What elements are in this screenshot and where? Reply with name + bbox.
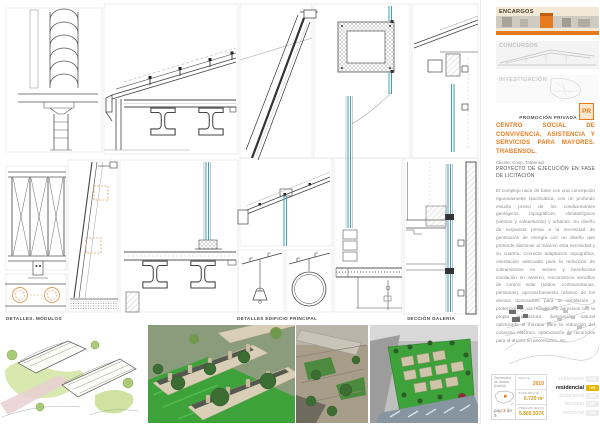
sidebar-item-label: ENCARGOS [499, 9, 534, 15]
category-dotacional[interactable]: dotacional dot [547, 392, 599, 400]
courtyard-render [296, 325, 368, 423]
detail-inclined-strut [70, 162, 118, 310]
detail-truss-elevation [8, 172, 66, 278]
detail-round-duct [289, 253, 330, 306]
detail-tiles-gutter [18, 9, 98, 150]
badge-urb: urb [586, 376, 599, 382]
aerial-sketch-render [0, 325, 140, 423]
detail-eave-right [414, 16, 478, 152]
category-industrial[interactable]: industrial ind [547, 409, 599, 417]
sidebar-item-investigacion[interactable]: INVESTIGACIÓN [496, 75, 599, 103]
badge-res: res [586, 385, 599, 391]
project-phase: PROYECTO DE EJECUCIÓN EN FASE DE LICITAC… [496, 166, 595, 180]
detail-window-corner [338, 6, 394, 94]
fact-fields: FECHA 2010 SUPERFICIE 6.720 m² PRESUPUES… [516, 375, 546, 419]
caption-detalles-edificio-principal: DETALLES EDIFICIO PRINCIPAL [237, 316, 317, 321]
detail-main-eave [104, 48, 236, 150]
category-urbanismo[interactable]: urbanismo urb [547, 375, 599, 383]
sidebar: ENCARGOS CONCURSOS INVESTIGACIÓN PROMOCI… [480, 0, 600, 424]
site-model-aerial-render [370, 325, 478, 423]
drawing-sheet: DETALLES. MÓDULOS DETALLES EDIFICIO PRIN… [0, 0, 480, 424]
caption-detalles-modulos: DETALLES. MÓDULOS [6, 316, 62, 321]
detail-floor-pipes [5, 284, 66, 306]
badge-ter: ter [586, 401, 599, 407]
detail-sloped-bay [240, 10, 318, 160]
sidebar-item-label: INVESTIGACIÓN [499, 77, 547, 83]
badge-dot: dot [586, 393, 599, 399]
detail-wall-section [336, 92, 402, 310]
category-legend: urbanismo urb residencial res dotacional… [547, 375, 599, 417]
project-fact-box: Torremocha de Jarama (Madrid) pag 3 de 5… [491, 374, 547, 420]
panel-frame-grid [6, 4, 478, 314]
housing-rows-render [148, 325, 295, 423]
detail-eave-glazing [238, 172, 330, 246]
badge-ind: ind [586, 410, 599, 416]
sidebar-item-encargos[interactable]: ENCARGOS [496, 7, 599, 35]
category-terciario[interactable]: terciario ter [547, 400, 599, 408]
detail-floor-slab [124, 162, 236, 312]
field-fecha: FECHA 2010 [516, 375, 546, 390]
location-text: Torremocha de Jarama (Madrid) [492, 375, 515, 388]
field-presupuesto: PRESUPUESTO 5.805.937€ [516, 405, 546, 419]
page-indicator: pag 3 de 5 [494, 408, 515, 418]
promo-badge: PR [579, 103, 594, 120]
project-client: Cliente: Coop. Trabensol [496, 160, 595, 165]
category-residencial[interactable]: residencial res [547, 383, 599, 391]
site-plan-drawing [501, 292, 599, 370]
spain-map-icon [493, 389, 515, 406]
project-title: CENTRO SOCIAL DE CONVIVENCIA, ASISTENCIA… [496, 122, 595, 157]
detail-pendant-lamp [242, 253, 282, 303]
portfolio-page: DETALLES. MÓDULOS DETALLES EDIFICIO PRIN… [0, 0, 600, 424]
detail-gallery-section [406, 162, 476, 314]
location-cell: Torremocha de Jarama (Madrid) pag 3 de 5 [492, 375, 516, 419]
field-superficie: SUPERFICIE 6.720 m² [516, 390, 546, 405]
sidebar-item-label: CONCURSOS [499, 43, 538, 49]
construction-details-drawing [0, 0, 480, 320]
caption-seccion-galeria: SECCIÓN GALERÍA [407, 316, 455, 321]
sidebar-item-concursos[interactable]: CONCURSOS [496, 41, 599, 69]
